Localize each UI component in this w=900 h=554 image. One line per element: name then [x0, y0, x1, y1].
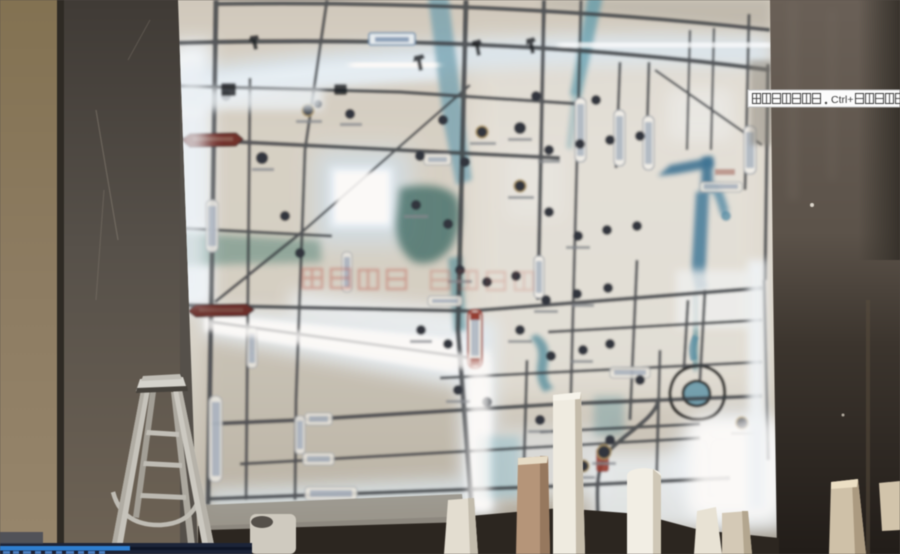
svg-text:Ctrl+: Ctrl+: [831, 94, 853, 106]
